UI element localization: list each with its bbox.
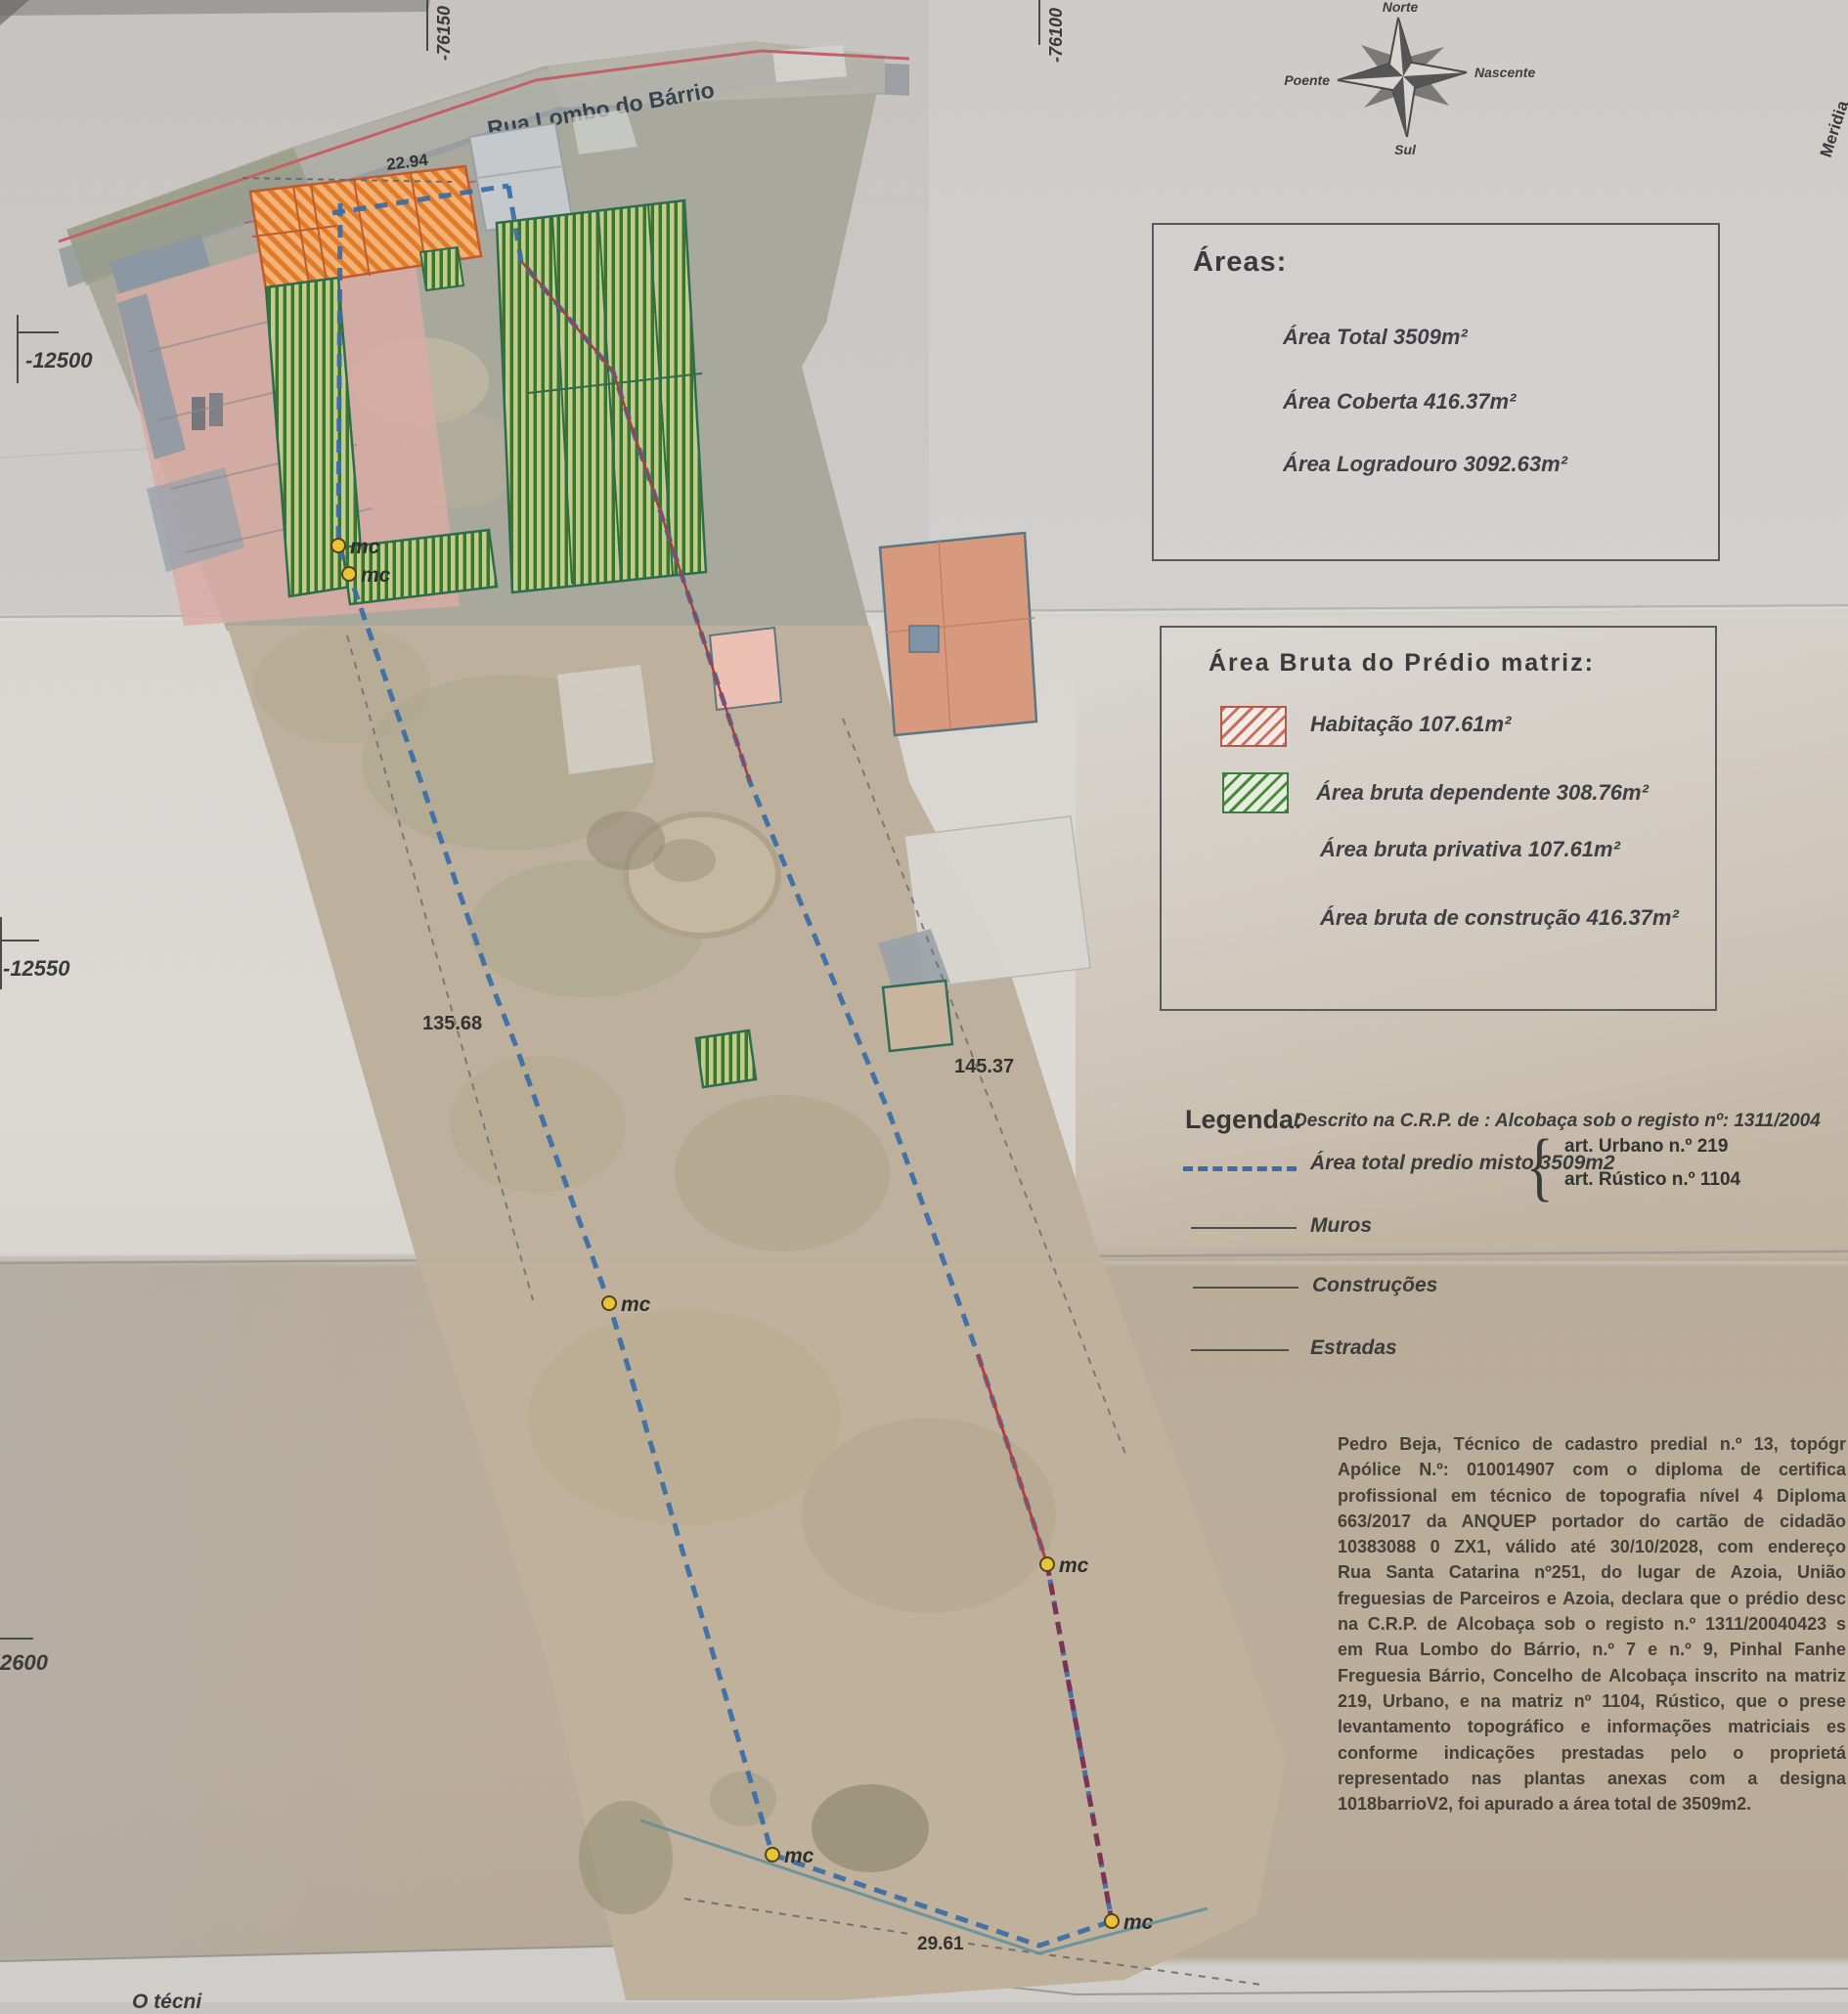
svg-text:mc: mc	[1123, 1911, 1154, 1934]
declaration-line: freguesias de Parceiros e Azoia, declara…	[1338, 1586, 1846, 1611]
legend-construcoes-label: Construções	[1312, 1274, 1437, 1297]
area-total: Área Total 3509m²	[1283, 325, 1468, 350]
declaration-line: 663/2017 da ANQUEP portador do cartão de…	[1338, 1509, 1846, 1534]
declaration-line: Rua Santa Catarina nº251, do lugar de Az…	[1338, 1559, 1846, 1585]
legend-muros-line	[1191, 1227, 1297, 1229]
grid-label-left-2: -12550	[3, 956, 70, 981]
areas-box: Áreas: Área Total 3509m² Área Coberta 41…	[1152, 223, 1720, 561]
legend-art-urbano: art. Urbano n.º 219	[1564, 1136, 1728, 1158]
legend-brace: {	[1526, 1122, 1554, 1210]
declaration-line: na C.R.P. de Alcobaça sob o registo n.º …	[1338, 1611, 1846, 1637]
areas-box-title: Áreas:	[1193, 246, 1287, 279]
teal-outlined-shed	[883, 981, 952, 1051]
dependente-label: Área bruta dependente 308.76m²	[1316, 780, 1649, 806]
declaration-line: 10383088 0 ZX1, válido até 30/10/2028, c…	[1338, 1534, 1846, 1559]
declaration-line: profissional em técnico de topografia ní…	[1338, 1483, 1846, 1509]
area-bruta-title: Área Bruta do Prédio matriz:	[1209, 649, 1595, 678]
compass-south-label: Sul	[1394, 142, 1417, 157]
svg-text:mc: mc	[1059, 1554, 1089, 1577]
declaration-text: Pedro Beja, Técnico de cadastro predial …	[1338, 1431, 1846, 1817]
construcao-label: Área bruta de construção 416.37m²	[1320, 905, 1679, 931]
grid-label-top-2: -76100	[1046, 8, 1066, 63]
bottom-dimension: 29.61	[917, 1934, 964, 1954]
declaration-line: 219, Urbano, e na matriz nº 1104, Rústic…	[1338, 1688, 1846, 1714]
svg-text:mc: mc	[350, 536, 380, 558]
svg-text:mc: mc	[784, 1845, 814, 1867]
declaration-line: Apólice N.º: 010014907 com o diploma de …	[1338, 1457, 1846, 1482]
legend-construcoes-line	[1193, 1287, 1298, 1289]
legend-estradas-label: Estradas	[1310, 1336, 1397, 1360]
area-bruta-box: Área Bruta do Prédio matriz: Habitação 1…	[1160, 626, 1717, 1011]
svg-text:mc: mc	[361, 564, 391, 587]
declaration-line: representado nas plantas anexas com a de…	[1338, 1766, 1846, 1791]
legend-dashed-line-swatch	[1183, 1166, 1297, 1171]
declaration-line: Pedro Beja, Técnico de cadastro predial …	[1338, 1431, 1846, 1457]
grid-label-left-1: -12500	[25, 348, 93, 372]
declaration-line: em Rua Lombo do Bárrio, n.º 7 e n.º 9, P…	[1338, 1637, 1846, 1662]
legend-muros-label: Muros	[1310, 1214, 1372, 1238]
habitacao-hatch-swatch	[1220, 706, 1287, 747]
privativa-label: Área bruta privativa 107.61m²	[1320, 837, 1620, 862]
compass-west-label: Poente	[1284, 72, 1330, 88]
legend-art-rustico: art. Rústico n.º 1104	[1564, 1169, 1740, 1191]
legend-registry-text: Descrito na C.R.P. de : Alcobaça sob o r…	[1294, 1111, 1848, 1132]
grid-label-left-3: 2600	[0, 1650, 49, 1675]
declaration-line: conforme indicações prestadas pelo o pro…	[1338, 1740, 1846, 1766]
left-side-dimension: 135.68	[422, 1013, 482, 1034]
svg-text:mc: mc	[621, 1293, 651, 1316]
habitacao-label: Habitação 107.61m²	[1310, 712, 1511, 737]
declaration-line: Freguesia Bárrio, Concelho de Alcobaça i…	[1338, 1663, 1846, 1688]
legend-estradas-line	[1191, 1349, 1289, 1351]
compass-east-label: Nascente	[1474, 65, 1535, 80]
declaration-line: levantamento topográfico e informações m…	[1338, 1714, 1846, 1739]
right-side-dimension: 145.37	[954, 1056, 1014, 1077]
grid-label-top-1: -76150	[434, 6, 454, 61]
dependente-hatch-swatch	[1222, 772, 1289, 813]
salmon-roof-building	[880, 533, 1036, 735]
compass-north-label: Norte	[1383, 0, 1419, 15]
bottom-clipped-text: O técni	[132, 1991, 201, 2014]
legend-title: Legenda:	[1185, 1105, 1302, 1135]
photographed-survey-document: Rua Lombo do Bárrio	[0, 0, 1848, 2002]
declaration-line: 1018barrioV2, foi apurado a área total d…	[1338, 1791, 1846, 1817]
area-logradouro: Área Logradouro 3092.63m²	[1283, 452, 1567, 477]
area-coberta: Área Coberta 416.37m²	[1283, 389, 1516, 415]
small-green-square	[696, 1030, 756, 1087]
